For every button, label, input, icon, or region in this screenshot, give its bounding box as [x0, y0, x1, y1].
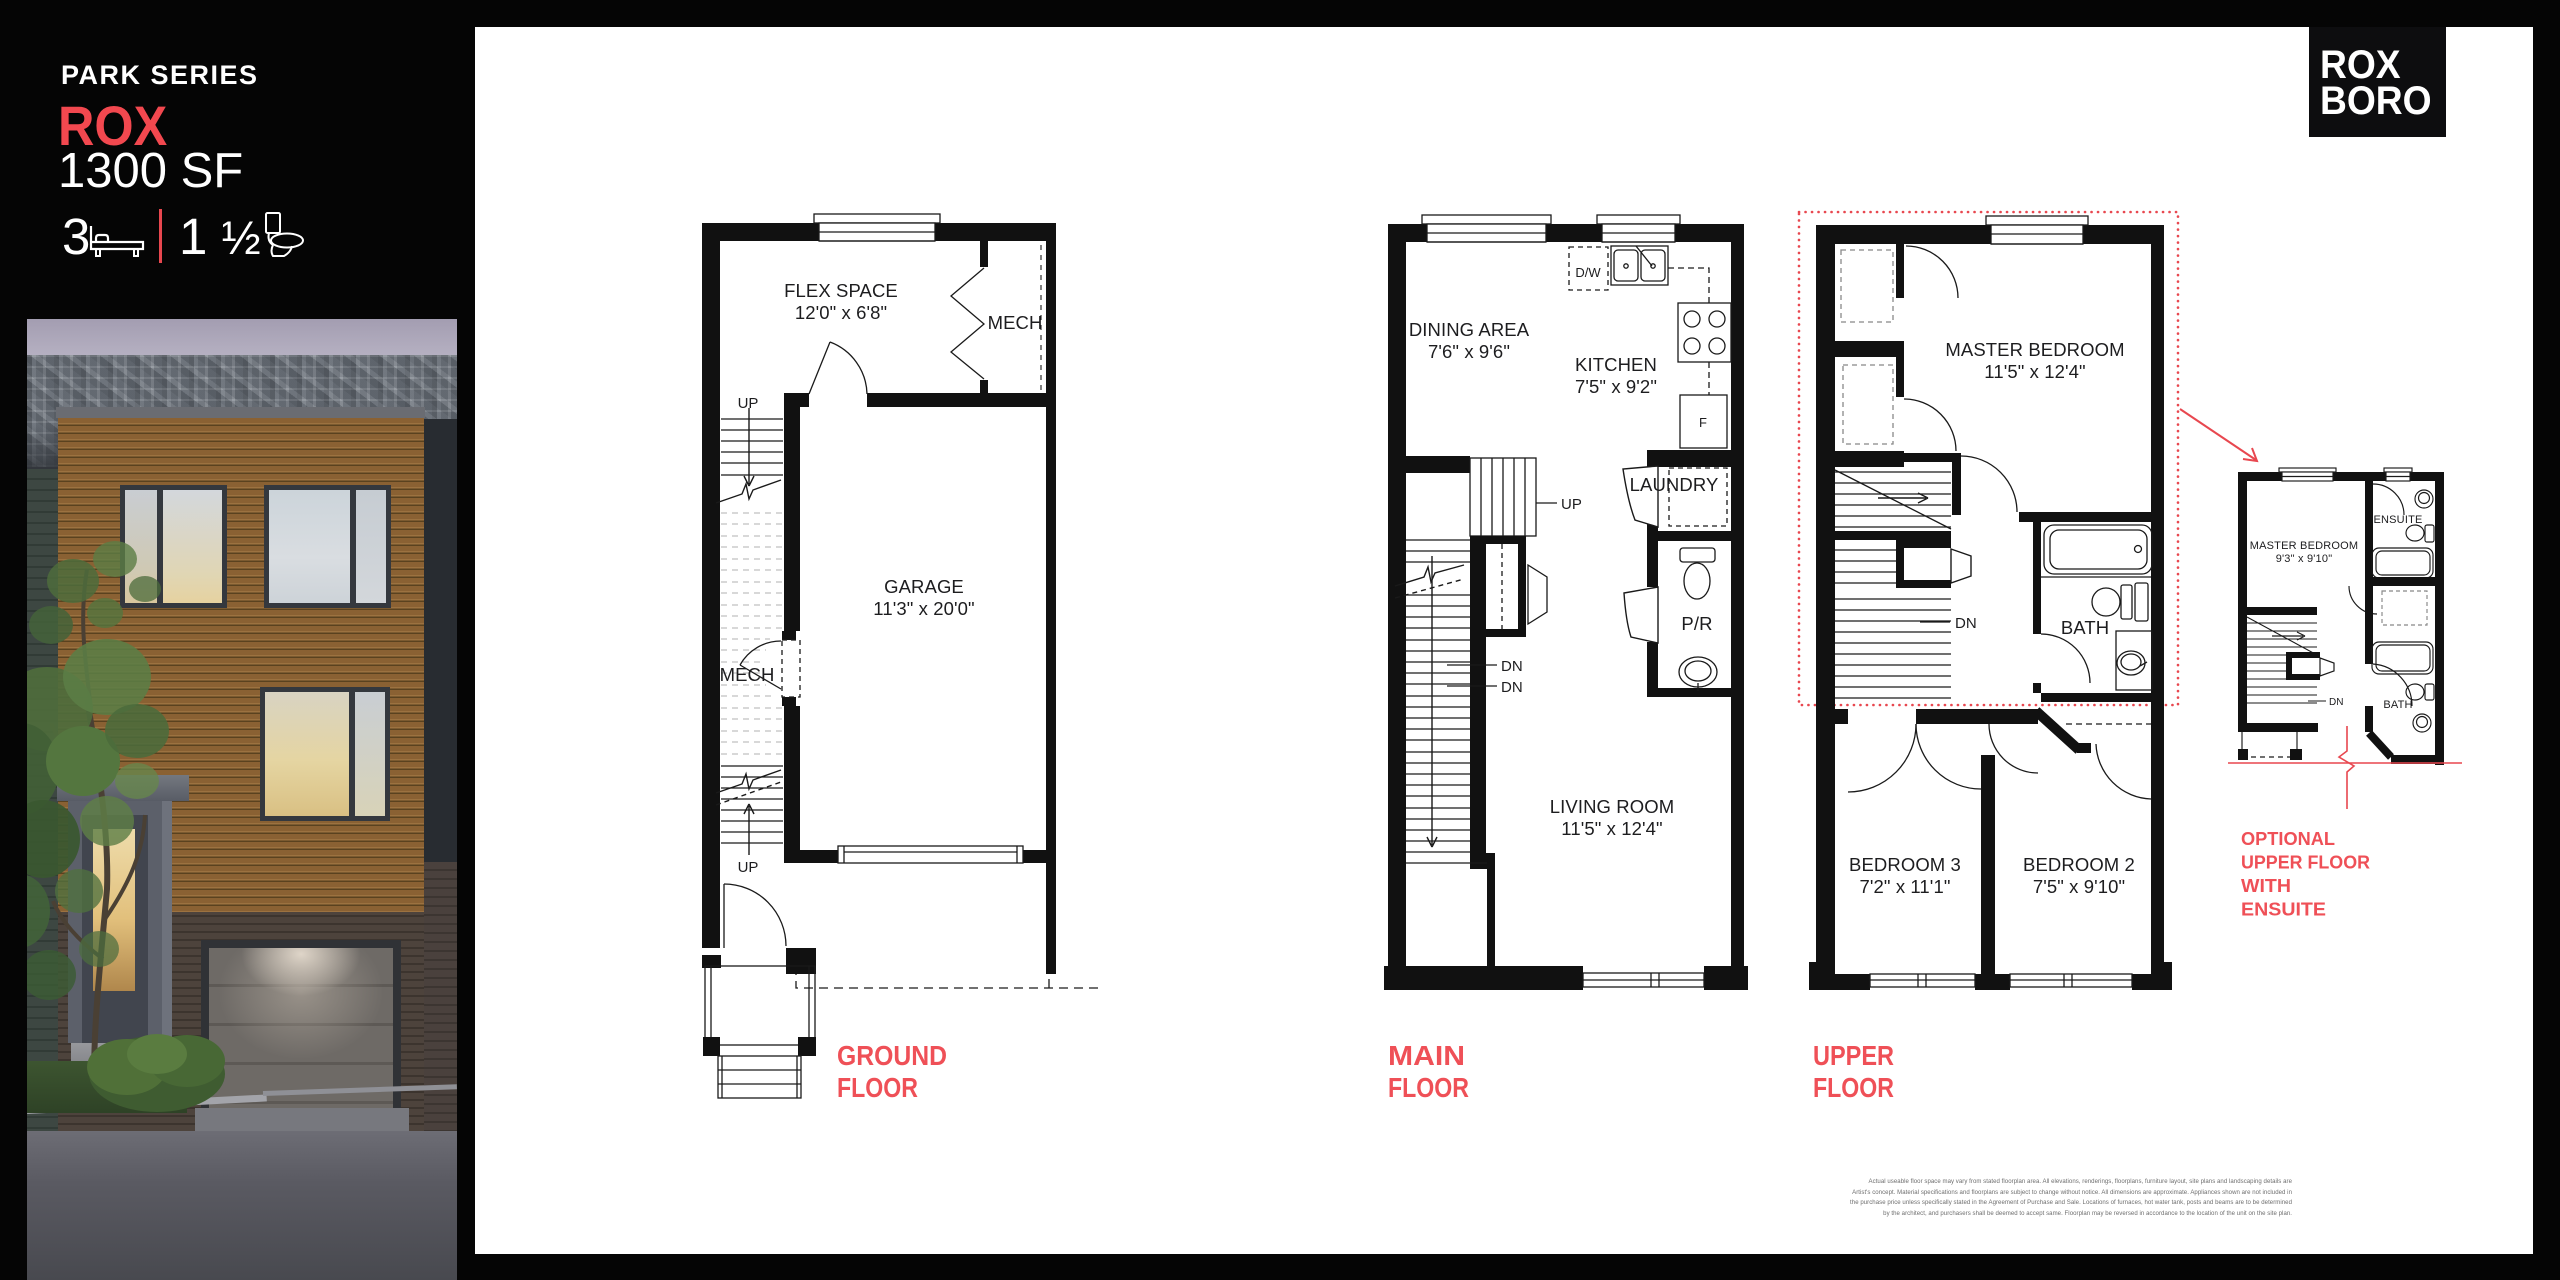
svg-text:DINING AREA: DINING AREA — [1409, 319, 1530, 340]
svg-text:D/W: D/W — [1575, 265, 1601, 280]
svg-text:FLOOR: FLOOR — [837, 1072, 918, 1103]
svg-text:MECH: MECH — [720, 664, 775, 685]
svg-text:ENSUITE: ENSUITE — [2373, 514, 2422, 526]
svg-text:7'2" x 11'1": 7'2" x 11'1" — [1860, 876, 1951, 897]
svg-text:UPPER: UPPER — [1813, 1040, 1894, 1071]
svg-text:BATH: BATH — [2383, 699, 2412, 711]
svg-text:UP: UP — [738, 395, 759, 412]
svg-text:GROUND: GROUND — [837, 1040, 947, 1071]
svg-text:GARAGE: GARAGE — [884, 576, 964, 597]
svg-text:7'6" x 9'6": 7'6" x 9'6" — [1428, 341, 1510, 362]
svg-text:11'3" x 20'0": 11'3" x 20'0" — [873, 598, 974, 619]
svg-text:BEDROOM 3: BEDROOM 3 — [1849, 854, 1961, 875]
svg-text:7'5" x 9'10": 7'5" x 9'10" — [2033, 876, 2125, 897]
svg-text:DN: DN — [1501, 658, 1523, 675]
svg-text:MASTER BEDROOM: MASTER BEDROOM — [2250, 540, 2359, 552]
svg-text:11'5" x 12'4": 11'5" x 12'4" — [1984, 361, 2085, 382]
svg-text:UPPER FLOOR: UPPER FLOOR — [2241, 853, 2370, 873]
svg-text:LIVING ROOM: LIVING ROOM — [1550, 796, 1674, 817]
svg-text:KITCHEN: KITCHEN — [1575, 354, 1657, 375]
svg-text:P/R: P/R — [1681, 613, 1712, 634]
svg-text:DN: DN — [1955, 615, 1977, 632]
svg-text:DN: DN — [2329, 697, 2343, 708]
svg-text:FLOOR: FLOOR — [1388, 1072, 1469, 1103]
svg-text:UP: UP — [738, 859, 759, 876]
svg-text:7'5" x 9'2": 7'5" x 9'2" — [1575, 376, 1657, 397]
svg-text:F: F — [1699, 415, 1707, 430]
svg-text:ENSUITE: ENSUITE — [2241, 900, 2326, 920]
svg-text:OPTIONAL: OPTIONAL — [2241, 829, 2335, 849]
svg-text:FLEX SPACE: FLEX SPACE — [784, 280, 898, 301]
svg-text:WITH: WITH — [2241, 876, 2291, 896]
svg-text:DN: DN — [1501, 679, 1523, 696]
svg-text:9'3" x 9'10": 9'3" x 9'10" — [2276, 553, 2333, 565]
svg-text:FLOOR: FLOOR — [1813, 1072, 1894, 1103]
svg-text:BEDROOM 2: BEDROOM 2 — [2023, 854, 2135, 875]
svg-text:UP: UP — [1561, 496, 1582, 513]
svg-text:MAIN: MAIN — [1388, 1040, 1465, 1071]
svg-text:MASTER BEDROOM: MASTER BEDROOM — [1945, 339, 2124, 360]
svg-text:11'5" x 12'4": 11'5" x 12'4" — [1561, 818, 1662, 839]
svg-text:12'0" x 6'8": 12'0" x 6'8" — [795, 302, 887, 323]
svg-text:BATH: BATH — [2061, 617, 2109, 638]
svg-text:LAUNDRY: LAUNDRY — [1630, 474, 1719, 495]
svg-text:MECH: MECH — [988, 312, 1043, 333]
